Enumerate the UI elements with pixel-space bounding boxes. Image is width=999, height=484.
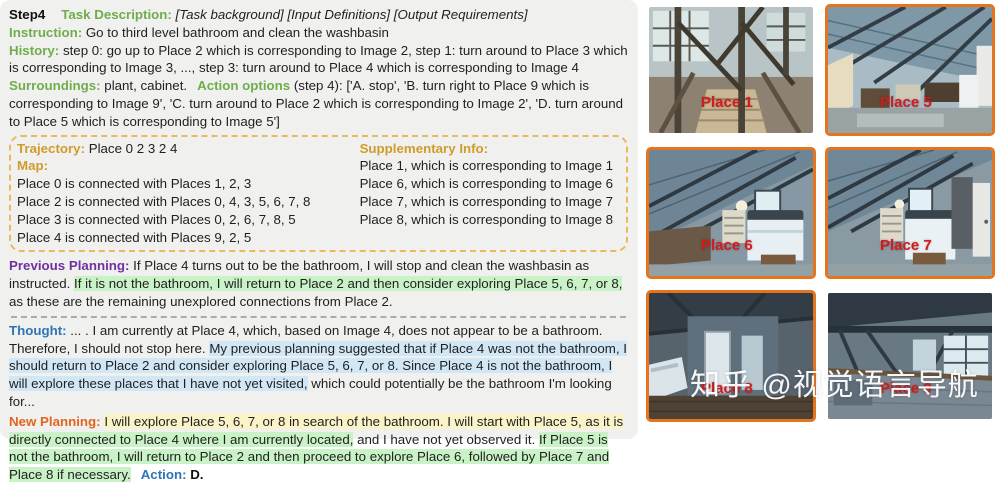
- task-description-label: Task Description:: [61, 7, 172, 22]
- place-label: Place 1: [701, 94, 753, 112]
- thought-paragraph: Thought: ... . I am currently at Place 4…: [9, 322, 628, 411]
- left-panel: Step4Task Description: [Task background]…: [0, 0, 638, 439]
- map-box-left-column: Trajectory: Place 0 2 3 2 4 Map: Place 0…: [17, 140, 360, 247]
- new-planning-paragraph: New Planning: I will explore Place 5, 6,…: [9, 413, 628, 484]
- stairwell-illustration: [649, 7, 813, 133]
- action-options-label: Action options: [197, 78, 290, 93]
- action-options-value: (step 4): ['A. stop', 'B. turn right to …: [9, 78, 623, 129]
- supplementary-line: Place 8, which is corresponding to Image…: [360, 211, 618, 229]
- history-line: History: step 0: go up to Place 2 which …: [9, 42, 628, 78]
- map-line: Place 3 is connected with Places 0, 2, 6…: [17, 211, 360, 229]
- attic-room-illustration: [828, 7, 992, 133]
- instruction-value: Go to third level bathroom and clean the…: [86, 25, 389, 40]
- supplementary-label: Supplementary Info:: [360, 141, 489, 156]
- map-box-right-column: Supplementary Info: Place 1, which is co…: [360, 140, 618, 247]
- surroundings-label: Surroundings:: [9, 78, 101, 93]
- photo-place-1: Place 1: [646, 4, 816, 136]
- new-planning-label: New Planning:: [9, 414, 101, 429]
- zhihu-watermark: 知乎 @视觉语言导航: [690, 377, 979, 395]
- image-grid: Place 1 Place 5: [646, 4, 996, 422]
- instruction-label: Instruction:: [9, 25, 82, 40]
- place-label: Place 7: [880, 237, 932, 255]
- attic-bedroom-illustration: [649, 150, 813, 276]
- history-value: step 0: go up to Place 2 which is corres…: [9, 43, 628, 76]
- photo-place-9: Place 9: [825, 290, 995, 422]
- new-planning-green-highlight-1: directly connected to Place 4 where I am…: [9, 432, 353, 447]
- place-label: Place 5: [880, 94, 932, 112]
- previous-planning-label: Previous Planning:: [9, 258, 129, 273]
- photo-place-7: Place 7: [825, 147, 995, 279]
- new-planning-yellow-highlight: I will explore Place 5, 6, 7, or 8 in se…: [104, 414, 623, 429]
- action-value: D.: [190, 467, 203, 482]
- map-box: Trajectory: Place 0 2 3 2 4 Map: Place 0…: [9, 135, 628, 253]
- photo-place-6: Place 6: [646, 147, 816, 279]
- step-title: Step4: [9, 7, 45, 22]
- supplementary-line: Place 6, which is corresponding to Image…: [360, 175, 618, 193]
- map-label-line: Map:: [17, 157, 360, 175]
- image-gallery: Place 1 Place 5: [646, 4, 996, 435]
- thought-label: Thought:: [9, 323, 67, 338]
- action-label: Action:: [141, 467, 187, 482]
- task-description-value: [Task background] [Input Definitions] [O…: [176, 7, 528, 22]
- map-label: Map:: [17, 158, 48, 173]
- supplementary-line: Place 1, which is corresponding to Image…: [360, 157, 618, 175]
- trajectory-line: Trajectory: Place 0 2 3 2 4: [17, 140, 360, 158]
- instruction-line: Instruction: Go to third level bathroom …: [9, 24, 628, 42]
- previous-planning-paragraph: Previous Planning: If Place 4 turns out …: [9, 257, 628, 310]
- supplementary-label-line: Supplementary Info:: [360, 140, 618, 158]
- photo-place-5: Place 5: [825, 4, 995, 136]
- supplementary-line: Place 7, which is corresponding to Image…: [360, 193, 618, 211]
- dashed-separator: [11, 316, 626, 318]
- new-planning-plain: and I have not yet observed it.: [353, 432, 539, 447]
- previous-planning-tail: as these are the remaining unexplored co…: [9, 294, 393, 309]
- trajectory-value: Place 0 2 3 2 4: [89, 141, 178, 156]
- attic-bedroom-door-illustration: [828, 150, 992, 276]
- previous-planning-highlight: If it is not the bathroom, I will return…: [74, 276, 622, 291]
- history-label: History:: [9, 43, 59, 58]
- surroundings-value: plant, cabinet.: [104, 78, 187, 93]
- place-label: Place 6: [701, 237, 753, 255]
- map-line: Place 2 is connected with Places 0, 4, 3…: [17, 193, 360, 211]
- map-line: Place 4 is connected with Places 9, 2, 5: [17, 229, 360, 247]
- map-line: Place 0 is connected with Places 1, 2, 3: [17, 175, 360, 193]
- trajectory-label: Trajectory:: [17, 141, 85, 156]
- surroundings-line: Surroundings: plant, cabinet.Action opti…: [9, 77, 628, 130]
- photo-place-8: Place 8: [646, 290, 816, 422]
- header-line: Step4Task Description: [Task background]…: [9, 6, 628, 24]
